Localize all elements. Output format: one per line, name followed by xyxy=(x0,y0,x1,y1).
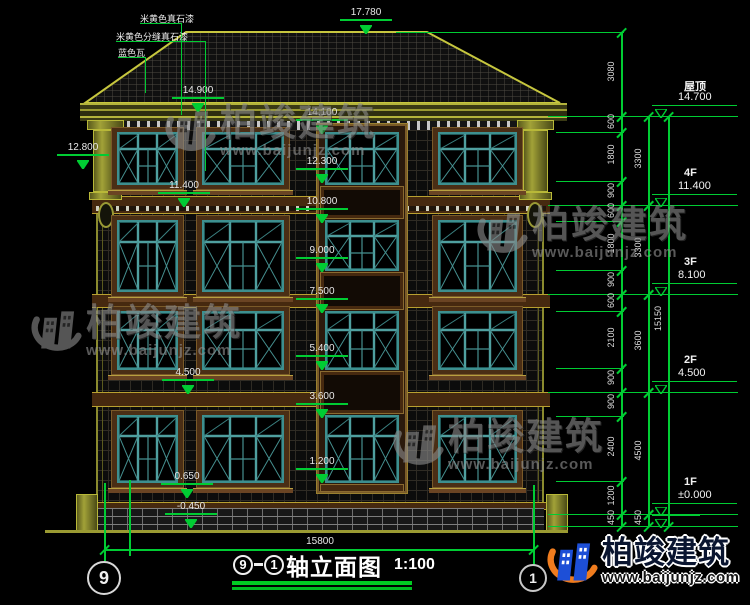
dimension-label: 15150 xyxy=(653,306,663,336)
leader-line xyxy=(145,57,146,93)
leader-line xyxy=(140,23,182,24)
dimension-label: 450 xyxy=(606,510,616,530)
floor-level-value: ±0.000 xyxy=(678,489,712,501)
axis-line-1 xyxy=(533,485,535,566)
title-scale: 1:100 xyxy=(394,556,435,574)
extension-line xyxy=(548,392,738,393)
brand-logo: 柏竣建筑 www.baijunjz.com xyxy=(540,536,739,601)
extension-line xyxy=(556,481,624,482)
ground-line xyxy=(45,530,568,533)
bottom-dimension-label: 15800 xyxy=(296,536,344,547)
level-marker: 11.400 xyxy=(158,180,210,212)
floor-level-name: 2F xyxy=(684,354,697,366)
extension-line xyxy=(129,480,131,556)
level-marker: -0.450 xyxy=(165,501,217,533)
brand-name: 柏竣建筑 xyxy=(602,535,730,570)
title-axis-end: 1 xyxy=(264,555,284,575)
dimension-label: 900 xyxy=(606,183,616,203)
extension-line xyxy=(396,32,624,33)
level-marker: 1.200 xyxy=(296,456,348,488)
extension-line xyxy=(548,294,738,295)
extension-line xyxy=(548,514,738,515)
level-marker: 4.500 xyxy=(162,367,214,399)
level-marker: 0.650 xyxy=(161,471,213,503)
dimension-label: 900 xyxy=(606,370,616,390)
dimension-label: 3300 xyxy=(633,237,643,262)
floor-level-value: 11.400 xyxy=(678,180,711,192)
elevation-drawing-canvas: 17.78014.90014.10012.80012.30011.40010.8… xyxy=(0,0,750,605)
axis-bubble-9: 9 xyxy=(87,561,121,595)
extension-line xyxy=(548,526,738,527)
dimension-label: 2100 xyxy=(606,327,616,352)
floor-level-name: 1F xyxy=(684,476,697,488)
dimension-label: 2400 xyxy=(606,436,616,461)
floor-level-triangle xyxy=(655,283,667,292)
floor-level-triangle xyxy=(655,194,667,203)
dimension-label: 1200 xyxy=(606,485,616,510)
dimension-label: 900 xyxy=(606,272,616,292)
extension-line xyxy=(556,270,624,271)
title-underline-1 xyxy=(232,581,412,585)
leader-line xyxy=(118,57,146,58)
floor-level-value: 4.500 xyxy=(678,367,706,379)
dimension-label: 3300 xyxy=(633,148,643,173)
brand-url: www.baijunjz.com xyxy=(602,569,739,586)
dimension-chain xyxy=(648,116,650,526)
leader-line xyxy=(116,41,206,42)
floor-level-value: 14.700 xyxy=(678,91,712,103)
dimension-label: 600 xyxy=(606,114,616,134)
level-marker: 9.000 xyxy=(296,245,348,277)
level-marker: 14.900 xyxy=(172,85,224,117)
level-marker: 5.400 xyxy=(296,343,348,375)
floor-level-triangle xyxy=(655,503,667,512)
dimension-label: 900 xyxy=(606,394,616,414)
annotation-layer: 17.78014.90014.10012.80012.30011.40010.8… xyxy=(0,0,750,605)
level-marker: 7.500 xyxy=(296,286,348,318)
level-marker: 14.100 xyxy=(296,107,348,139)
dimension-chain xyxy=(668,116,670,526)
title-underline-2 xyxy=(232,587,412,590)
title-dash xyxy=(254,563,263,566)
floor-level-triangle xyxy=(655,105,667,114)
leader-line xyxy=(205,41,206,171)
dimension-label: 4500 xyxy=(633,440,643,465)
floor-level-name: 3F xyxy=(684,256,697,268)
extension-line xyxy=(556,416,624,417)
dimension-chain xyxy=(621,32,623,526)
dimension-label: 600 xyxy=(606,203,616,223)
dimension-label: 1800 xyxy=(606,144,616,169)
dimension-label: 3080 xyxy=(606,61,616,86)
extension-line xyxy=(548,116,738,117)
axis-line-9 xyxy=(104,483,106,561)
dimension-label: 1800 xyxy=(606,233,616,258)
extension-line xyxy=(548,205,738,206)
extension-line xyxy=(556,368,624,369)
extension-line xyxy=(556,181,624,182)
dimension-label: 3600 xyxy=(633,330,643,355)
dimension-label: 600 xyxy=(606,293,616,313)
drawing-title: 9 1 轴立面图 1:100 xyxy=(233,551,435,578)
title-text: 轴立面图 xyxy=(286,548,382,582)
dimension-label: 450 xyxy=(633,510,643,530)
level-marker: 12.300 xyxy=(296,156,348,188)
level-marker: 12.800 xyxy=(57,142,109,174)
brand-logo-icon xyxy=(540,536,598,601)
floor-level-name: 4F xyxy=(684,167,697,179)
level-marker: 3.600 xyxy=(296,391,348,423)
title-axis-start: 9 xyxy=(233,555,253,575)
floor-level-value: 8.100 xyxy=(678,269,706,281)
level-marker: 10.800 xyxy=(296,196,348,228)
floor-level-triangle xyxy=(655,381,667,390)
level-marker: 17.780 xyxy=(340,7,392,39)
ground-level-triangle xyxy=(655,515,667,524)
